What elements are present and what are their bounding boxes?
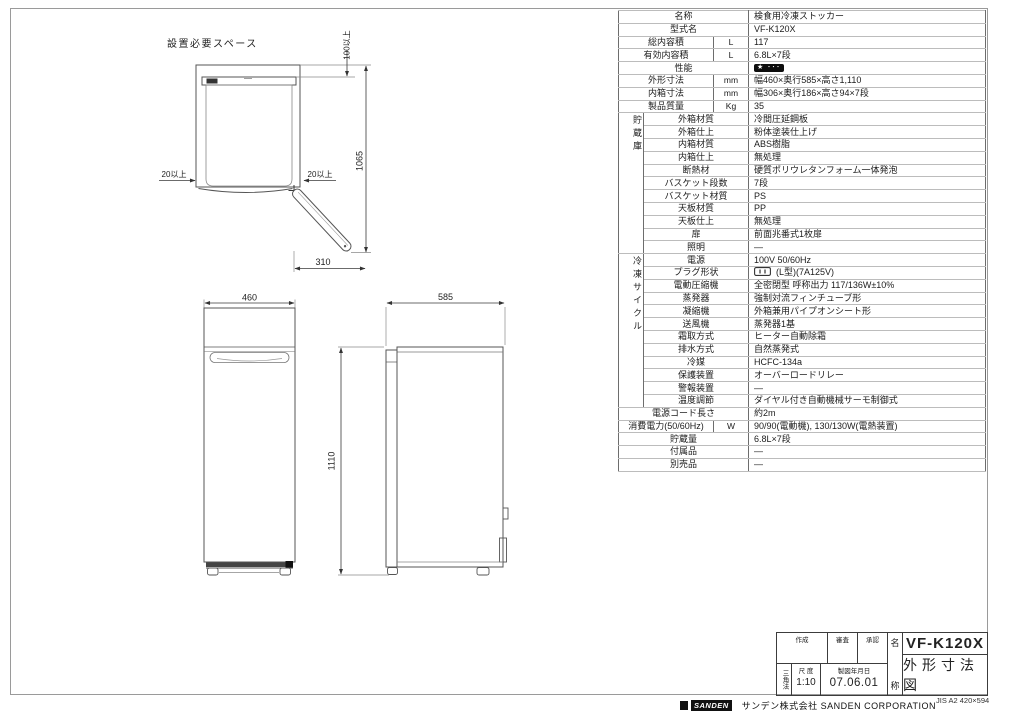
spec-row: 電源コード長さ約2m xyxy=(619,407,986,420)
spec-value-text: HCFC-134a xyxy=(754,357,802,367)
spec-row: バスケット材質PS xyxy=(619,190,986,203)
scale-value: 1:10 xyxy=(792,675,820,688)
spec-unit: W xyxy=(714,420,749,433)
spec-row: 名称検食用冷凍ストッカー xyxy=(619,11,986,24)
spec-value: 6.8L×7段 xyxy=(749,433,986,446)
spec-value-text: 35 xyxy=(754,101,764,111)
spec-value: 無処理 xyxy=(749,215,986,228)
spec-value: 90/90(電動機), 130/130W(電熱装置) xyxy=(749,420,986,433)
side-door-panel xyxy=(386,350,397,567)
side-body xyxy=(397,347,503,567)
spec-row: 電動圧縮機全密閉型 呼称出力 117/136W±10% xyxy=(619,279,986,292)
hinge-mark xyxy=(207,79,218,84)
spec-value: 粉体塗装仕上げ xyxy=(749,126,986,139)
spec-name: 消費電力(50/60Hz) xyxy=(619,420,714,433)
spec-value: — xyxy=(749,458,986,471)
spec-value: 6.8L×7段 xyxy=(749,49,986,62)
spec-group-label: 貯蔵庫 xyxy=(619,113,644,254)
spec-row: 扉前面兆番式1枚扉 xyxy=(619,228,986,241)
spec-row: 外形寸法mm幅460×奥行585×高さ1,110 xyxy=(619,74,986,87)
spec-name: 名称 xyxy=(619,11,749,24)
performance-star-badge: ★ ･･･ xyxy=(754,64,784,72)
spec-value-text: 117 xyxy=(754,37,768,47)
dim-1110: 1110 xyxy=(327,452,337,471)
date-cell: 製図年月日 07.06.01 xyxy=(821,664,887,695)
spec-name: 天板材質 xyxy=(644,202,749,215)
spec-name: 蒸発器 xyxy=(644,292,749,305)
spec-value: PS xyxy=(749,190,986,203)
spec-row: 内箱寸法mm幅306×奥行186×高さ94×7段 xyxy=(619,87,986,100)
spec-value-text: ヒーター自動除霜 xyxy=(754,331,826,341)
spec-value: オーバーロードリレー xyxy=(749,369,986,382)
spec-row: 温度調節ダイヤル付き自動機械サーモ制御式 xyxy=(619,394,986,407)
date-label: 製図年月日 xyxy=(821,664,887,675)
spec-value: 無処理 xyxy=(749,151,986,164)
created-label: 作成 xyxy=(796,637,809,644)
spec-row: 保護装置オーバーロードリレー xyxy=(619,369,986,382)
drawing-title: 外形寸法図 xyxy=(903,655,987,695)
review-cell: 審査 xyxy=(828,633,858,663)
spec-name: 霜取方式 xyxy=(644,330,749,343)
spec-name: 断熱材 xyxy=(644,164,749,177)
base-shadow-band xyxy=(206,563,293,568)
projection-method-label: 三角法 xyxy=(777,664,792,695)
plug-shape-icon xyxy=(754,267,771,276)
spec-name: 貯蔵量 xyxy=(619,433,749,446)
spec-name: プラグ形状 xyxy=(644,266,749,279)
spec-row: バスケット段数7段 xyxy=(619,177,986,190)
spec-group-label: 冷凍サイクル xyxy=(619,254,644,408)
power-outlet-box xyxy=(503,508,508,519)
spec-unit: mm xyxy=(714,87,749,100)
spec-value: 蒸発器1基 xyxy=(749,318,986,331)
spec-value-text: 無処理 xyxy=(754,152,781,162)
spec-value: 幅306×奥行186×高さ94×7段 xyxy=(749,87,986,100)
spec-value-text: 粉体塗装仕上げ xyxy=(754,127,817,137)
plan-view-label: 設置必要スペース xyxy=(167,37,258,50)
spec-name: 外箱仕上 xyxy=(644,126,749,139)
spec-name: 電源コード長さ xyxy=(619,407,749,420)
front-foot-left xyxy=(208,568,219,575)
spec-value-text: 幅460×奥行585×高さ1,110 xyxy=(754,75,861,85)
dim-clearance-right: 20以上 xyxy=(308,170,333,179)
spec-row: 内箱仕上無処理 xyxy=(619,151,986,164)
spec-unit: L xyxy=(714,49,749,62)
spec-value: 100V 50/60Hz xyxy=(749,254,986,267)
spec-value: — xyxy=(749,382,986,395)
spec-value-text: (L型)(7A125V) xyxy=(776,267,834,277)
spec-name: 警報装置 xyxy=(644,382,749,395)
name-column: 名 称 xyxy=(888,633,903,695)
spec-value-text: 7段 xyxy=(754,178,768,188)
spec-value: — xyxy=(749,446,986,459)
spec-value: 7段 xyxy=(749,177,986,190)
spec-name: 冷媒 xyxy=(644,356,749,369)
spec-value: ダイヤル付き自動機械サーモ制御式 xyxy=(749,394,986,407)
spec-value-text: 自然蒸発式 xyxy=(754,344,799,354)
spec-value-text: ダイヤル付き自動機械サーモ制御式 xyxy=(754,395,898,405)
spec-unit: L xyxy=(714,36,749,49)
spec-value: 幅460×奥行585×高さ1,110 xyxy=(749,74,986,87)
spec-value-text: ABS樹脂 xyxy=(754,139,790,149)
spec-value-text: — xyxy=(754,446,763,456)
spec-row: 別売品— xyxy=(619,458,986,471)
scale-label: 尺 度 xyxy=(792,664,820,675)
title-block: 作成 審査 承認 三角法 尺 度 1:10 製図年月日 07.06.01 名 称 xyxy=(776,632,988,696)
spec-name: 付属品 xyxy=(619,446,749,459)
spec-value: 冷間圧延鋼板 xyxy=(749,113,986,126)
spec-value-text: 強制対流フィンチューブ形 xyxy=(754,293,861,303)
front-foot-right xyxy=(280,568,291,575)
side-foot-front xyxy=(388,568,398,575)
spec-value: VF-K120X xyxy=(749,23,986,36)
spec-row: 凝縮機外箱兼用パイプオンシート形 xyxy=(619,305,986,318)
spec-name: 凝縮機 xyxy=(644,305,749,318)
spec-name: 電源 xyxy=(644,254,749,267)
spec-value: 強制対流フィンチューブ形 xyxy=(749,292,986,305)
spec-table: 名称検食用冷凍ストッカー型式名VF-K120X総内容積L117有効内容積L6.8… xyxy=(618,10,986,472)
side-foot-rear xyxy=(477,568,489,576)
spec-row: 貯蔵庫外箱材質冷間圧延鋼板 xyxy=(619,113,986,126)
spec-value: 自然蒸発式 xyxy=(749,343,986,356)
spec-row: 冷媒HCFC-134a xyxy=(619,356,986,369)
dim-585: 585 xyxy=(438,292,453,302)
spec-row: 蒸発器強制対流フィンチューブ形 xyxy=(619,292,986,305)
company-name: サンデン株式会社 SANDEN CORPORATION xyxy=(742,699,936,712)
spec-value: 117 xyxy=(749,36,986,49)
spec-value-text: 幅306×奥行186×高さ94×7段 xyxy=(754,88,869,98)
drawing-sheet: 設置必要スペース xyxy=(0,0,1012,714)
spec-row: 有効内容積L6.8L×7段 xyxy=(619,49,986,62)
spec-name: 保護装置 xyxy=(644,369,749,382)
spec-row: 消費電力(50/60Hz)W90/90(電動機), 130/130W(電熱装置) xyxy=(619,420,986,433)
spec-value: 全密閉型 呼称出力 117/136W±10% xyxy=(749,279,986,292)
side-view: 585 xyxy=(386,292,508,575)
approved-cell: 承認 xyxy=(858,633,887,663)
spec-name: 排水方式 xyxy=(644,343,749,356)
spec-value-text: 約2m xyxy=(754,408,776,418)
spec-row: 外箱仕上粉体塗装仕上げ xyxy=(619,126,986,139)
spec-value-text: 無処理 xyxy=(754,216,781,226)
approved-label: 承認 xyxy=(866,637,879,644)
spec-name: 別売品 xyxy=(619,458,749,471)
model-number: VF-K120X xyxy=(903,633,987,655)
spec-value-text: 6.8L×7段 xyxy=(754,50,791,60)
footer: SANDEN サンデン株式会社 SANDEN CORPORATION xyxy=(680,699,936,712)
name-col-bottom: 称 xyxy=(890,679,899,692)
spec-value-text: 検食用冷凍ストッカー xyxy=(754,11,844,21)
spec-value: PP xyxy=(749,202,986,215)
spec-name: 有効内容積 xyxy=(619,49,714,62)
spec-value: ★ ･･･ xyxy=(749,62,986,75)
date-value: 07.06.01 xyxy=(821,675,887,689)
spec-name: 電動圧縮機 xyxy=(644,279,749,292)
spec-value-text: 全密閉型 呼称出力 117/136W±10% xyxy=(754,280,894,290)
scale-cell: 尺 度 1:10 xyxy=(792,664,821,695)
spec-value: 35 xyxy=(749,100,986,113)
spec-value-text: — xyxy=(754,459,763,469)
spec-row: 製品質量Kg35 xyxy=(619,100,986,113)
spec-name: 性能 xyxy=(619,62,749,75)
spec-row: 排水方式自然蒸発式 xyxy=(619,343,986,356)
door-face xyxy=(206,85,292,186)
spec-row: 内箱材質ABS樹脂 xyxy=(619,138,986,151)
spec-row: 照明— xyxy=(619,241,986,254)
open-door xyxy=(291,187,353,253)
dim-310: 310 xyxy=(315,257,330,267)
spec-name: 外形寸法 xyxy=(619,74,714,87)
spec-row: 断熱材硬質ポリウレタンフォーム一体発泡 xyxy=(619,164,986,177)
spec-row: 総内容積L117 xyxy=(619,36,986,49)
dim-clearance-top: 100以上 xyxy=(343,30,352,59)
spec-row: 性能★ ･･･ xyxy=(619,62,986,75)
spec-row: 冷凍サイクル電源100V 50/60Hz xyxy=(619,254,986,267)
spec-row: 付属品— xyxy=(619,446,986,459)
dim-clearance-left: 20以上 xyxy=(162,170,187,179)
spec-value-text: 100V 50/60Hz xyxy=(754,255,811,265)
name-col-top: 名 xyxy=(890,636,899,649)
spec-name: 送風機 xyxy=(644,318,749,331)
spec-row: 霜取方式ヒーター自動除霜 xyxy=(619,330,986,343)
spec-name: 照明 xyxy=(644,241,749,254)
plan-view: 設置必要スペース xyxy=(159,30,371,272)
paper-size-note: JIS A2 420×594 xyxy=(936,696,989,705)
spec-name: 製品質量 xyxy=(619,100,714,113)
spec-row: 警報装置— xyxy=(619,382,986,395)
spec-value: 前面兆番式1枚扉 xyxy=(749,228,986,241)
spec-value: 検食用冷凍ストッカー xyxy=(749,11,986,24)
spec-value-text: オーバーロードリレー xyxy=(754,370,844,380)
spec-value: ABS樹脂 xyxy=(749,138,986,151)
sanden-logo-icon xyxy=(680,701,688,710)
spec-name: 内箱寸法 xyxy=(619,87,714,100)
spec-row: 型式名VF-K120X xyxy=(619,23,986,36)
dim-460: 460 xyxy=(242,293,257,303)
spec-value-text: — xyxy=(754,383,763,393)
spec-unit: mm xyxy=(714,74,749,87)
spec-value-text: 硬質ポリウレタンフォーム一体発泡 xyxy=(754,165,897,175)
spec-value-text: 冷間圧延鋼板 xyxy=(754,114,808,124)
spec-row: 天板材質PP xyxy=(619,202,986,215)
door-swing-arc xyxy=(199,189,293,193)
spec-value-text: 90/90(電動機), 130/130W(電熱装置) xyxy=(754,421,898,431)
spec-value: (L型)(7A125V) xyxy=(749,266,986,279)
spec-name: 内箱材質 xyxy=(644,138,749,151)
spec-name: 型式名 xyxy=(619,23,749,36)
spec-value: HCFC-134a xyxy=(749,356,986,369)
nameplate-mark xyxy=(286,561,294,568)
spec-value: ヒーター自動除霜 xyxy=(749,330,986,343)
spec-value-text: 6.8L×7段 xyxy=(754,434,791,444)
front-body xyxy=(204,308,295,562)
spec-value-text: 蒸発器1基 xyxy=(754,319,795,329)
spec-value-text: PP xyxy=(754,203,766,213)
spec-name: バスケット段数 xyxy=(644,177,749,190)
spec-row: プラグ形状(L型)(7A125V) xyxy=(619,266,986,279)
spec-row: 送風機蒸発器1基 xyxy=(619,318,986,331)
spec-value: 外箱兼用パイプオンシート形 xyxy=(749,305,986,318)
spec-value-text: PS xyxy=(754,191,766,201)
created-cell: 作成 xyxy=(777,633,828,663)
spec-name: 温度調節 xyxy=(644,394,749,407)
spec-value: 約2m xyxy=(749,407,986,420)
dim-1065: 1065 xyxy=(355,151,365,171)
spec-value: 硬質ポリウレタンフォーム一体発泡 xyxy=(749,164,986,177)
spec-row: 天板仕上無処理 xyxy=(619,215,986,228)
spec-value-text: — xyxy=(754,242,763,252)
spec-value-text: 外箱兼用パイプオンシート形 xyxy=(754,306,871,316)
spec-name: 総内容積 xyxy=(619,36,714,49)
review-label: 審査 xyxy=(836,637,849,644)
spec-name: 外箱材質 xyxy=(644,113,749,126)
sanden-logo-text: SANDEN xyxy=(691,700,732,711)
spec-name: 天板仕上 xyxy=(644,215,749,228)
front-view: 460 1110 xyxy=(204,293,389,576)
spec-name: 扉 xyxy=(644,228,749,241)
spec-value: — xyxy=(749,241,986,254)
spec-unit: Kg xyxy=(714,100,749,113)
spec-row: 貯蔵量6.8L×7段 xyxy=(619,433,986,446)
spec-name: 内箱仕上 xyxy=(644,151,749,164)
spec-value-text: VF-K120X xyxy=(754,24,796,34)
spec-value-text: 前面兆番式1枚扉 xyxy=(754,229,822,239)
spec-name: バスケット材質 xyxy=(644,190,749,203)
